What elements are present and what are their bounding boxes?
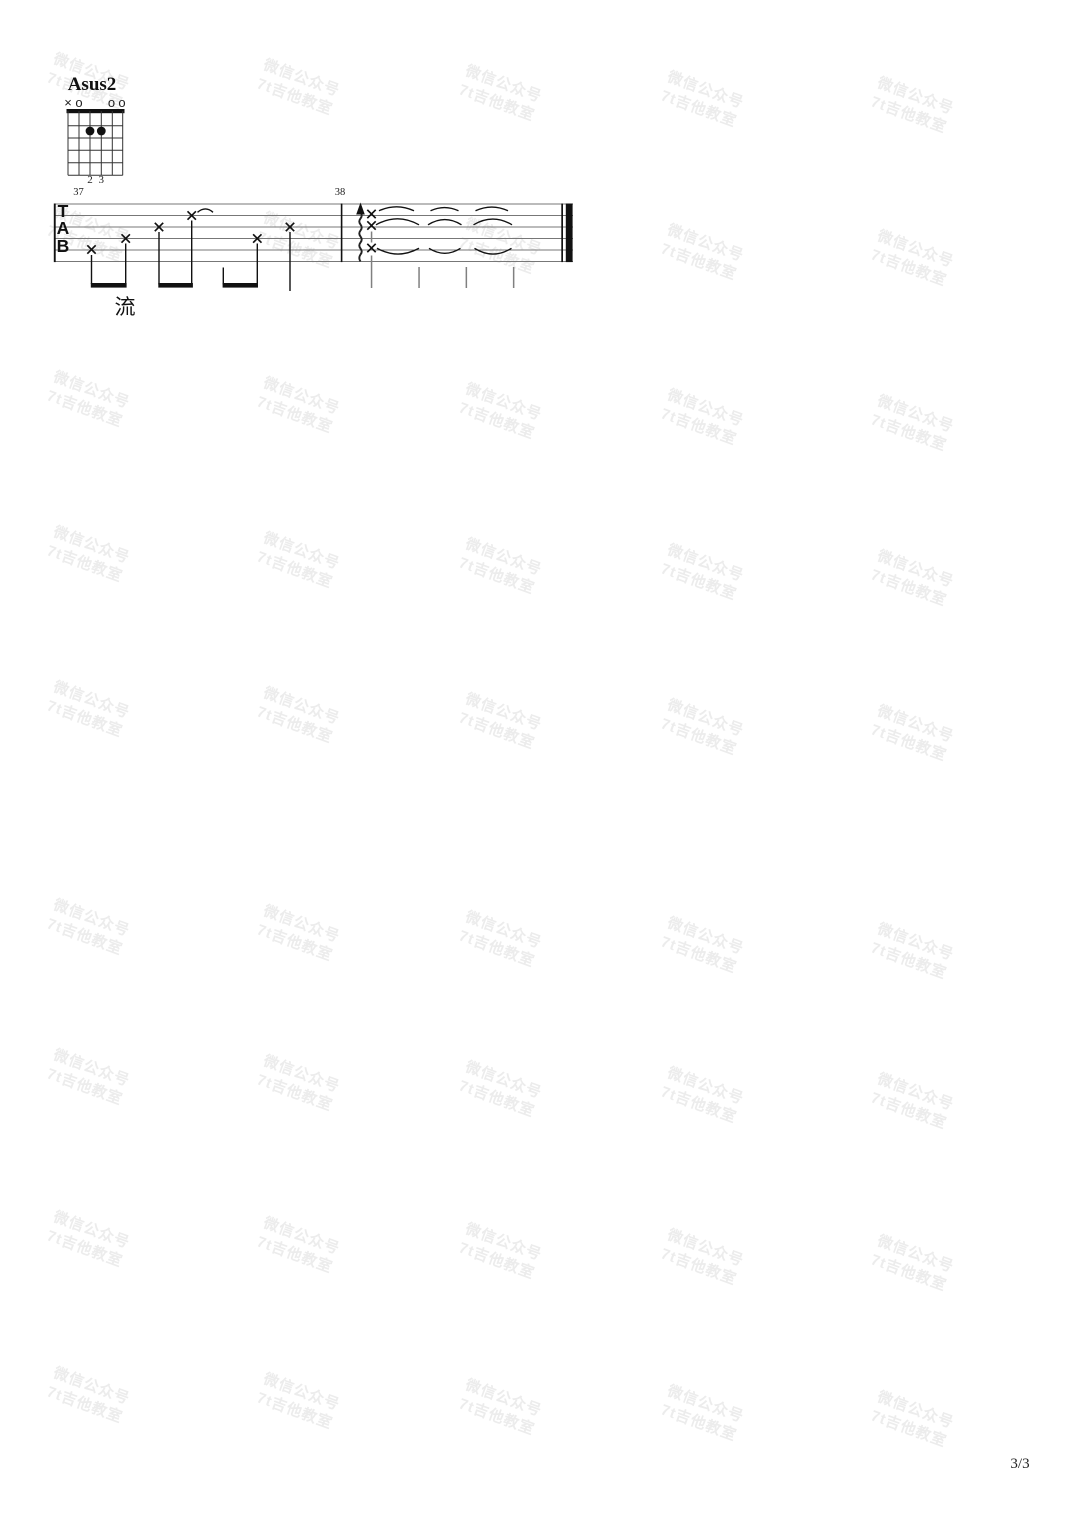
watermark: 微信公众号7t吉他教室 [456,1220,545,1285]
finger-number: 3 [99,174,105,186]
watermark: 微信公众号7t吉他教室 [456,690,545,755]
watermark: 微信公众号7t吉他教室 [868,392,957,457]
watermark: 微信公众号7t吉他教室 [254,1370,343,1435]
string-marker-open: o [108,95,115,110]
watermark: 微信公众号7t吉他教室 [868,227,957,292]
measure-number-38: 38 [335,187,346,198]
chord-stem [371,232,373,289]
let-ring-ties [376,207,512,254]
chord-dot [86,127,95,136]
watermark: 微信公众号7t吉他教室 [254,902,343,967]
watermark: 微信公众号7t吉他教室 [44,1208,133,1273]
watermark: 微信公众号7t吉他教室 [658,541,747,606]
watermark: 微信公众号7t吉他教室 [868,74,957,139]
watermark: 微信公众号7t吉他教室 [44,1364,133,1429]
chord-diagram-grid [67,109,125,175]
chord-dot [97,127,106,136]
watermark: 微信公众号7t吉他教室 [658,68,747,133]
watermark: 微信公众号7t吉他教室 [44,1046,133,1111]
final-barline-thin [561,204,563,263]
watermark: 微信公众号7t吉他教室 [44,523,133,588]
page-number: 3/3 [1010,1456,1029,1473]
chord-frets [68,126,123,176]
chord-name: Asus2 [68,74,117,96]
watermark: 微信公众号7t吉他教室 [868,920,957,985]
dead-note-x [367,221,375,229]
watermark: 微信公众号7t吉他教室 [254,529,343,594]
watermark: 微信公众号7t吉他教室 [456,380,545,445]
watermark: 微信公众号7t吉他教室 [254,1214,343,1279]
dead-note-x [367,210,375,218]
watermark: 微信公众号7t吉他教室 [456,1058,545,1123]
tab-clef-letter-b: B [57,238,70,256]
dead-note-heads [87,210,375,254]
watermark: 微信公众号7t吉他教室 [254,1052,343,1117]
watermark: 微信公众号7t吉他教室 [658,221,747,286]
watermark: 微信公众号7t吉他教室 [868,702,957,767]
beam [223,283,258,288]
barline-left [54,204,56,263]
watermark: 微信公众号7t吉他教室 [254,684,343,749]
watermark: 微信公众号7t吉他教室 [456,1376,545,1441]
watermark: 微信公众号7t吉他教室 [868,547,957,612]
beat-strokes [418,267,514,288]
watermark: 微信公众号7t吉他教室 [254,374,343,439]
watermark: 微信公众号7t吉他教室 [868,1388,957,1453]
watermark: 微信公众号7t吉他教室 [658,386,747,451]
string-marker-mute: × [64,95,72,110]
final-barline-thick [566,204,573,263]
beam [91,283,127,288]
watermark: 微信公众号7t吉他教室 [658,696,747,761]
sheet-page: 微信公众号7t吉他教室微信公众号7t吉他教室微信公众号7t吉他教室微信公众号7t… [0,0,1080,1527]
notation-svg [0,0,620,340]
watermark: 微信公众号7t吉他教室 [868,1070,957,1135]
watermark: 微信公众号7t吉他教室 [44,896,133,961]
watermark: 微信公众号7t吉他教室 [456,908,545,973]
tie-arc [198,209,214,212]
chord-strings [68,111,123,175]
watermark: 微信公众号7t吉他教室 [44,678,133,743]
beam [158,283,193,288]
lyric: 流 [115,291,136,321]
watermark: 微信公众号7t吉他教室 [658,1226,747,1291]
string-marker-open: o [75,95,82,110]
watermark: 微信公众号7t吉他教室 [868,1232,957,1297]
watermark: 微信公众号7t吉他教室 [456,535,545,600]
strum-arrow-icon [356,203,365,262]
finger-number: 2 [87,174,93,186]
barline-m38 [341,204,343,263]
watermark: 微信公众号7t吉他教室 [658,914,747,979]
watermark: 微信公众号7t吉他教室 [44,368,133,433]
watermark: 微信公众号7t吉他教室 [658,1064,747,1129]
staff-lines [54,204,573,262]
string-marker-open: o [118,95,125,110]
measure-number-37: 37 [73,187,84,198]
watermark: 微信公众号7t吉他教室 [658,1382,747,1447]
dead-note-x [367,244,375,252]
